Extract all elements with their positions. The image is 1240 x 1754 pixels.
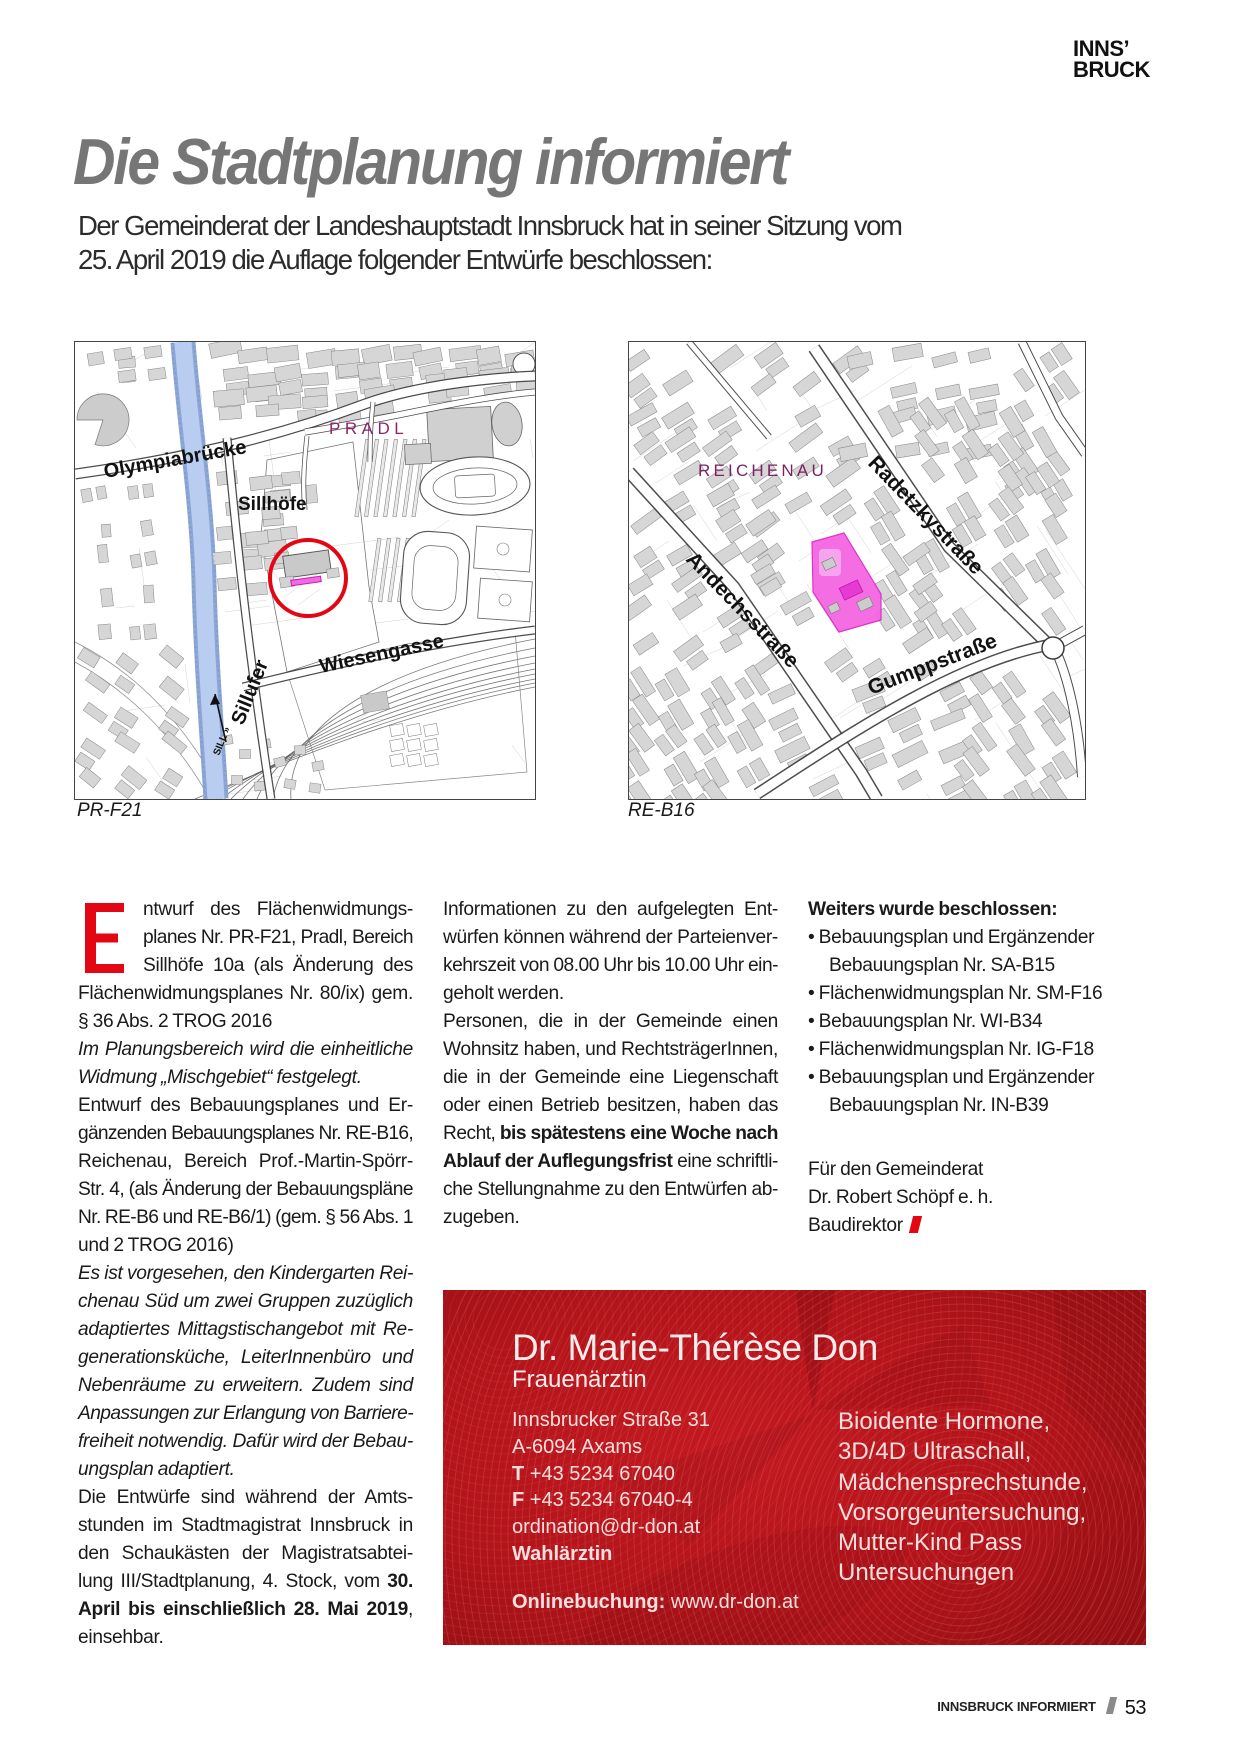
svg-text:Sillhöfe: Sillhöfe [238,494,307,515]
svg-text:REICHENAU: REICHENAU [698,461,827,480]
svg-text:PRADL: PRADL [329,419,408,438]
